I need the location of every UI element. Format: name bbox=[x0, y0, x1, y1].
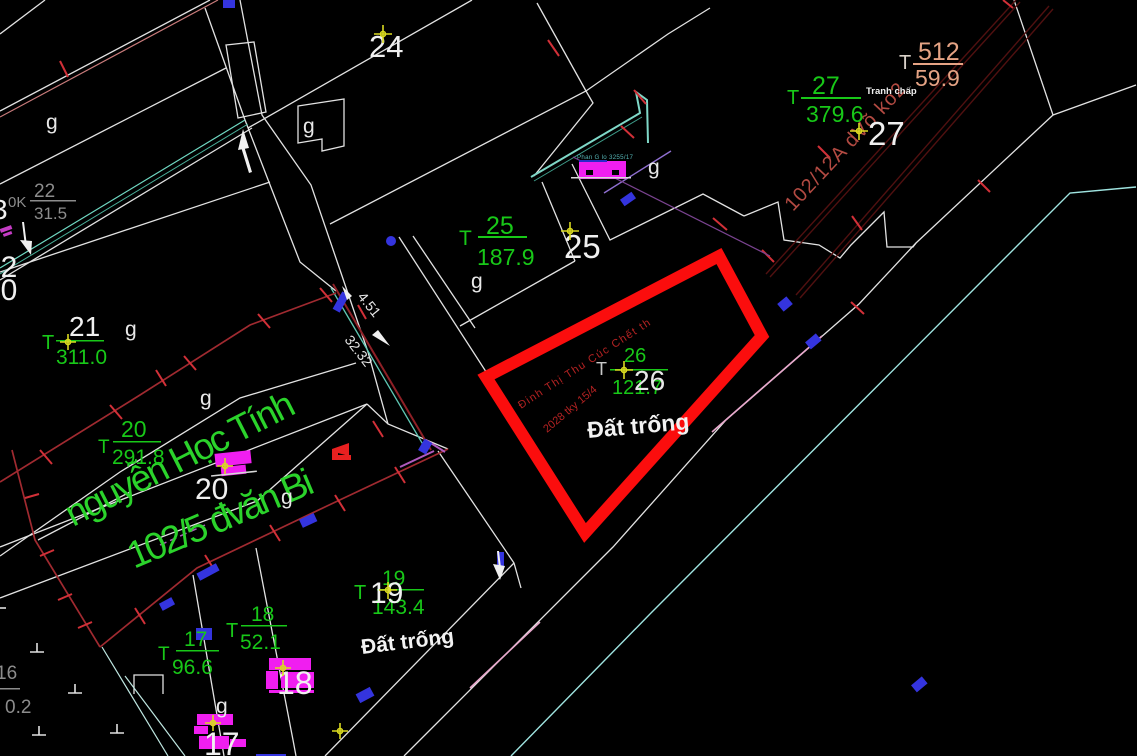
svg-text:27: 27 bbox=[868, 115, 905, 152]
svg-text:Tranh chấp: Tranh chấp bbox=[866, 86, 917, 97]
svg-text:g: g bbox=[216, 695, 228, 718]
svg-text:59.9: 59.9 bbox=[915, 65, 960, 91]
svg-text:g: g bbox=[281, 486, 293, 509]
svg-text:20: 20 bbox=[195, 473, 228, 506]
svg-text:g: g bbox=[46, 111, 58, 134]
svg-text:Phan G lo 3255/17: Phan G lo 3255/17 bbox=[577, 154, 634, 161]
svg-text:31.5: 31.5 bbox=[34, 204, 67, 223]
svg-text:g: g bbox=[648, 156, 660, 179]
svg-text:17: 17 bbox=[184, 628, 207, 651]
svg-text:26: 26 bbox=[624, 345, 646, 367]
svg-text:187.9: 187.9 bbox=[477, 244, 535, 270]
svg-text:25: 25 bbox=[486, 212, 514, 240]
svg-text:291.8: 291.8 bbox=[112, 446, 165, 469]
svg-text:20: 20 bbox=[121, 416, 147, 442]
svg-text:17: 17 bbox=[204, 726, 240, 756]
svg-text:26: 26 bbox=[634, 365, 665, 396]
svg-text:0.2: 0.2 bbox=[5, 697, 31, 718]
svg-text:3: 3 bbox=[0, 194, 8, 225]
svg-text:g: g bbox=[200, 387, 212, 410]
svg-text:T: T bbox=[158, 644, 170, 665]
svg-text:311.0: 311.0 bbox=[56, 346, 107, 369]
svg-text:50: 50 bbox=[0, 274, 17, 307]
svg-text:16: 16 bbox=[0, 663, 17, 684]
svg-text:T: T bbox=[226, 620, 238, 642]
svg-text:T: T bbox=[42, 332, 54, 354]
svg-text:T: T bbox=[459, 227, 472, 250]
svg-text:21: 21 bbox=[69, 311, 100, 342]
svg-text:18: 18 bbox=[251, 603, 274, 626]
svg-text:0K: 0K bbox=[8, 194, 26, 211]
svg-text:g: g bbox=[471, 270, 483, 293]
svg-text:g: g bbox=[125, 318, 137, 341]
svg-text:379.6: 379.6 bbox=[806, 101, 864, 127]
svg-text:52.1: 52.1 bbox=[240, 631, 281, 654]
svg-text:27: 27 bbox=[812, 72, 840, 100]
svg-text:T: T bbox=[98, 437, 110, 458]
svg-text:g: g bbox=[303, 115, 315, 138]
svg-text:512: 512 bbox=[918, 38, 960, 66]
svg-text:96.6: 96.6 bbox=[172, 656, 213, 679]
svg-text:T: T bbox=[899, 52, 911, 74]
svg-text:19: 19 bbox=[370, 577, 403, 610]
svg-text:T: T bbox=[354, 582, 366, 604]
svg-text:22: 22 bbox=[34, 181, 55, 202]
svg-text:T: T bbox=[787, 87, 799, 109]
